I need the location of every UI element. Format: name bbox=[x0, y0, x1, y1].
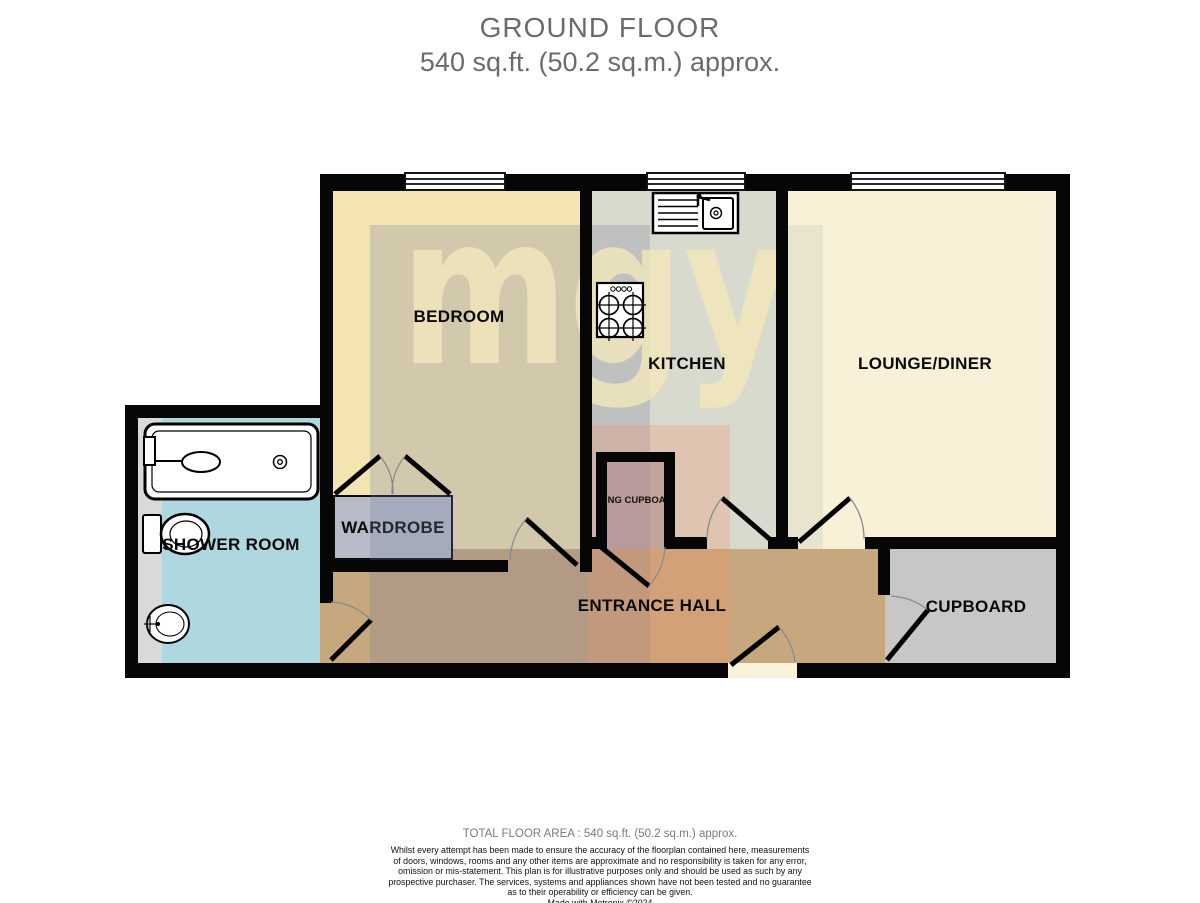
bedroom-door bbox=[510, 519, 577, 565]
shower-room-label: SHOWER ROOM bbox=[162, 535, 299, 555]
cupboard-label: CUPBOARD bbox=[926, 597, 1027, 617]
disclaimer-line: Whilst every attempt has been made to en… bbox=[0, 845, 1200, 856]
floorplan-page: GROUND FLOOR 540 sq.ft. (50.2 sq.m.) app… bbox=[0, 0, 1200, 903]
front-door bbox=[731, 627, 795, 665]
entrance-hall-label: ENTRANCE HALL bbox=[578, 596, 726, 616]
disclaimer-line: prospective purchaser. The services, sys… bbox=[0, 877, 1200, 888]
disclaimer-line: of doors, windows, rooms and any other i… bbox=[0, 856, 1200, 867]
airing-cupboard-label: AIRING CUPBOARD bbox=[604, 494, 664, 507]
basin-icon bbox=[144, 605, 189, 643]
bedroom-label: BEDROOM bbox=[414, 307, 505, 327]
cupboard-door bbox=[887, 596, 928, 660]
footer: TOTAL FLOOR AREA : 540 sq.ft. (50.2 sq.m… bbox=[0, 828, 1200, 903]
metropix-credit: Made with Metropix ©2024 bbox=[0, 898, 1200, 903]
lounge-door bbox=[799, 498, 864, 542]
disclaimer-line: omission or mis-statement. This plan is … bbox=[0, 866, 1200, 877]
shower-room-door bbox=[331, 602, 371, 660]
airing-cupboard-label-text: AIRING CUPBOARD bbox=[604, 495, 664, 506]
lounge-label: LOUNGE/DINER bbox=[858, 354, 992, 374]
kitchen-door bbox=[707, 498, 773, 542]
bath-icon bbox=[144, 424, 318, 499]
disclaimer-text: Whilst every attempt has been made to en… bbox=[0, 845, 1200, 898]
fixtures-layer bbox=[0, 0, 1200, 903]
hob-icon bbox=[596, 283, 646, 341]
disclaimer-line: as to their operability or efficiency ca… bbox=[0, 887, 1200, 898]
total-floor-area: TOTAL FLOOR AREA : 540 sq.ft. (50.2 sq.m… bbox=[0, 828, 1200, 840]
wardrobe-doors bbox=[335, 456, 450, 494]
airing-cupboard-door bbox=[601, 547, 665, 586]
sink-icon bbox=[653, 193, 738, 233]
kitchen-label: KITCHEN bbox=[648, 354, 726, 374]
